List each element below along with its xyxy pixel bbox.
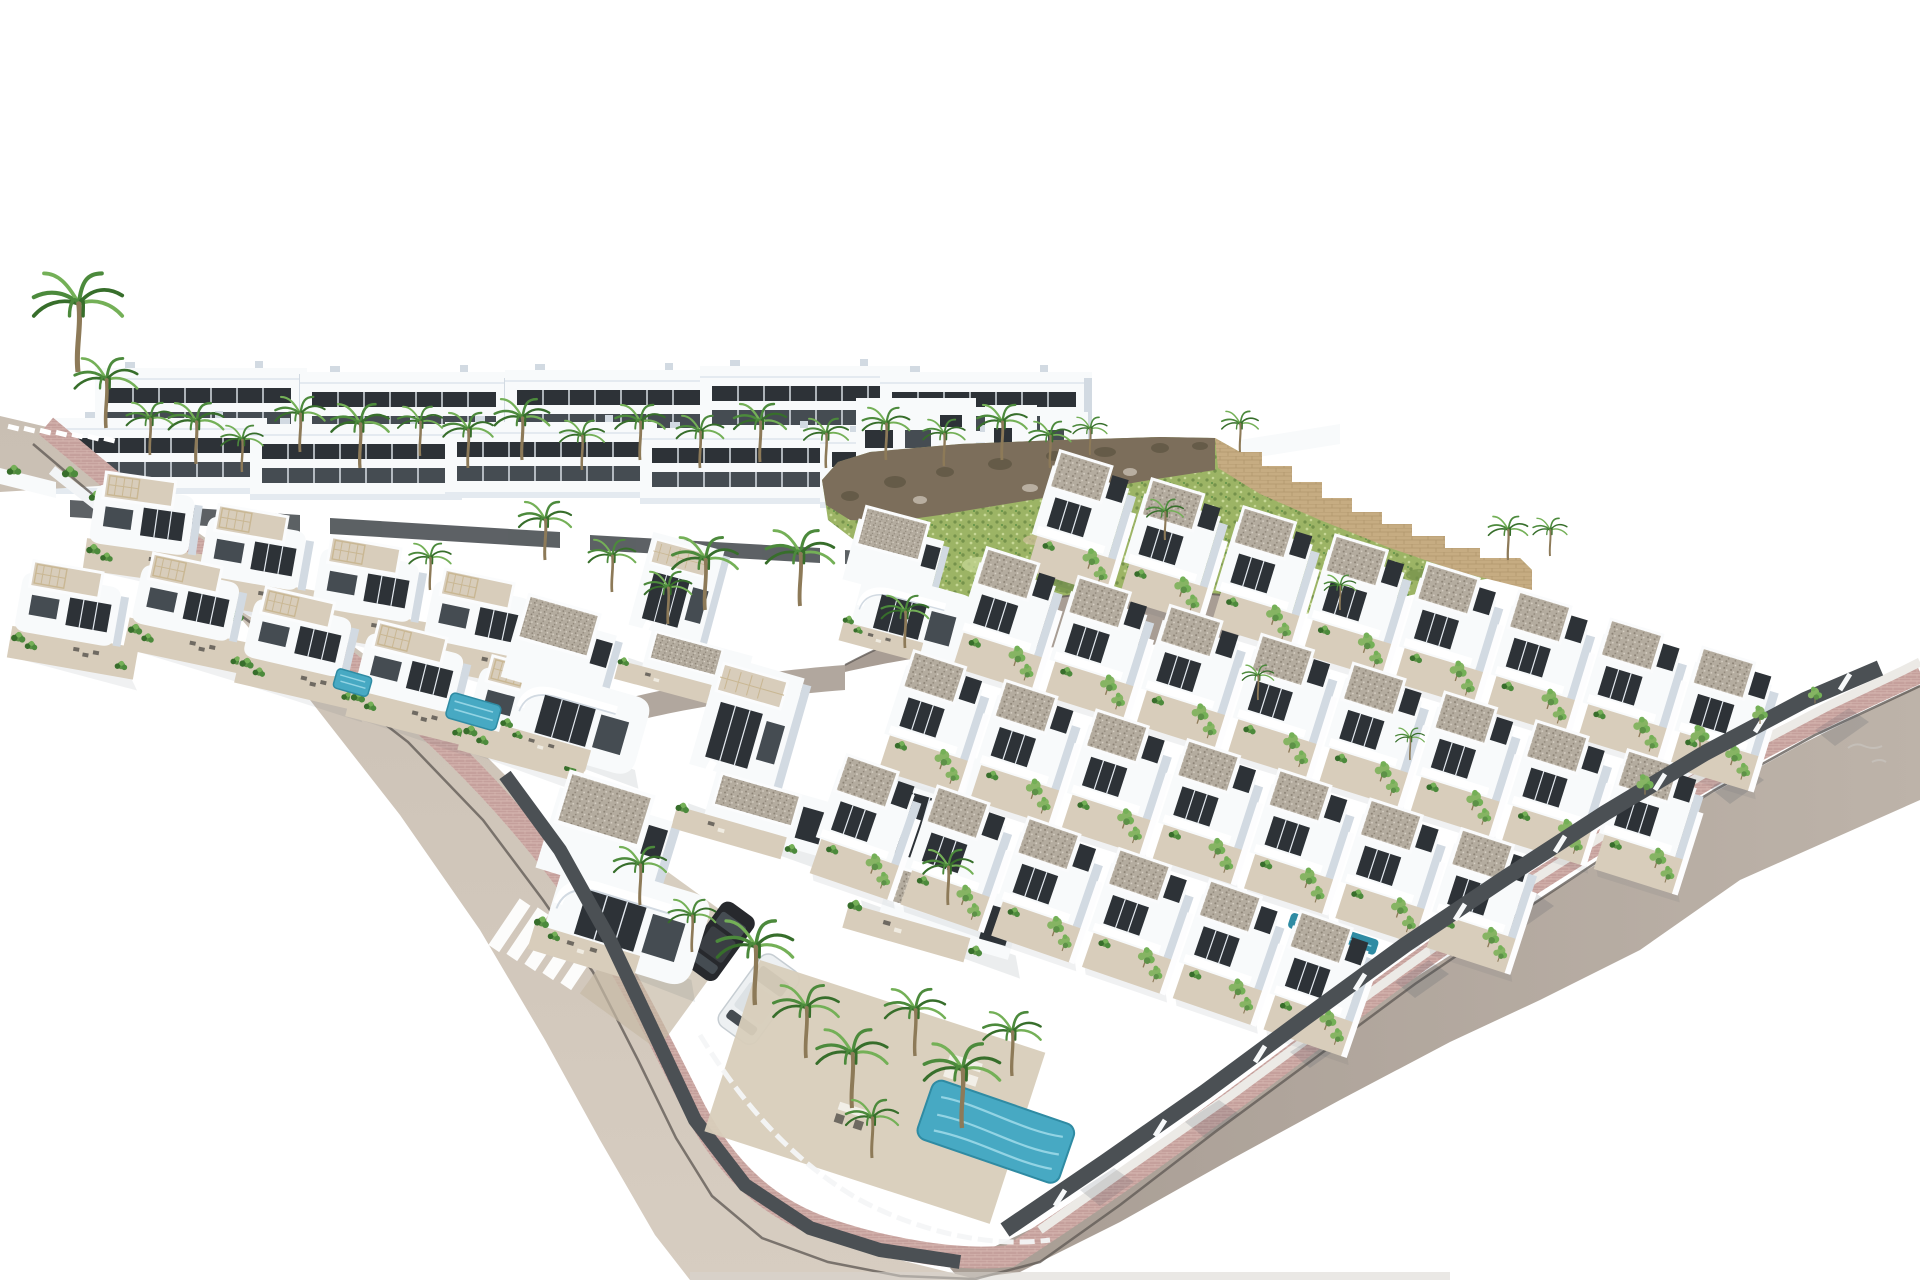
aerial-render-canvas [0, 0, 1920, 1280]
development-aerial-render [0, 0, 1920, 1280]
bottom-cropped-pavement-strip [690, 1272, 1450, 1280]
apartment-block [250, 417, 462, 500]
